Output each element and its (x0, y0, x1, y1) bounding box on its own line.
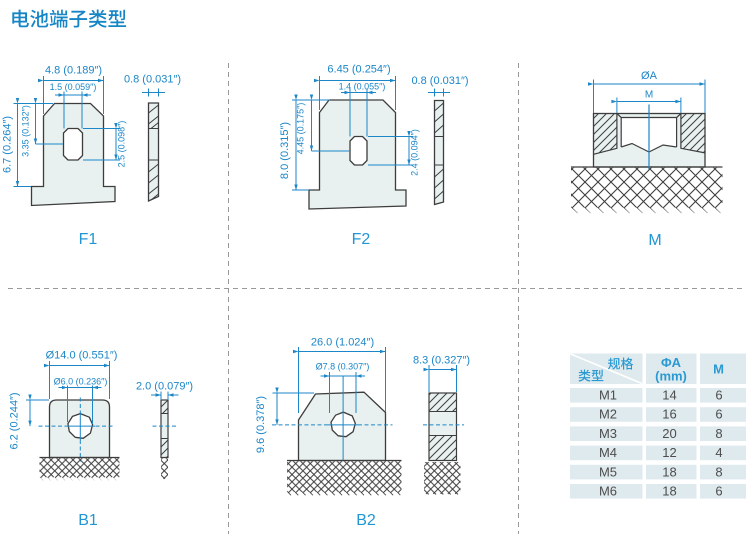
svg-text:M5: M5 (599, 464, 617, 479)
svg-text:16: 16 (662, 407, 676, 422)
svg-text:1.5 (0.059″): 1.5 (0.059″) (50, 82, 97, 92)
svg-text:3.35 (0.132″): 3.35 (0.132″) (21, 105, 31, 157)
svg-text:2.4 (0.094″): 2.4 (0.094″) (410, 129, 420, 176)
svg-text:M6: M6 (599, 484, 617, 499)
svg-text:2.0 (0.079″): 2.0 (0.079″) (136, 381, 193, 393)
svg-text:ØA: ØA (641, 70, 658, 82)
svg-text:20: 20 (662, 426, 676, 441)
svg-text:B2: B2 (356, 512, 376, 529)
svg-text:18: 18 (662, 484, 676, 499)
svg-text:M: M (648, 232, 661, 249)
svg-text:Ø6.0 (0.236″): Ø6.0 (0.236″) (54, 377, 108, 387)
svg-text:8.3 (0.327″): 8.3 (0.327″) (413, 355, 470, 367)
svg-text:8.0 (0.315″): 8.0 (0.315″) (279, 122, 291, 179)
svg-text:6.45 (0.254″): 6.45 (0.254″) (327, 64, 390, 76)
svg-text:M: M (645, 90, 653, 101)
svg-text:14: 14 (662, 388, 676, 403)
svg-text:1.4 (0.055″): 1.4 (0.055″) (339, 82, 386, 92)
svg-text:M2: M2 (599, 407, 617, 422)
svg-text:26.0 (1.024″): 26.0 (1.024″) (311, 337, 374, 349)
svg-text:6: 6 (715, 407, 722, 422)
svg-text:8: 8 (715, 426, 722, 441)
svg-text:M3: M3 (599, 426, 617, 441)
svg-text:6.7 (0.264″): 6.7 (0.264″) (2, 116, 14, 173)
svg-text:9.6 (0.378″): 9.6 (0.378″) (255, 396, 267, 453)
svg-text:18: 18 (662, 464, 676, 479)
svg-text:4.45 (0.175″): 4.45 (0.175″) (296, 103, 306, 155)
svg-text:4: 4 (715, 445, 722, 460)
svg-text:6: 6 (715, 484, 722, 499)
svg-text:2.5 (0.098″): 2.5 (0.098″) (117, 121, 127, 168)
svg-text:B1: B1 (78, 512, 98, 529)
svg-text:F1: F1 (79, 231, 98, 248)
svg-text:6.2 (0.244″): 6.2 (0.244″) (9, 392, 21, 449)
svg-text:12: 12 (662, 445, 676, 460)
svg-text:M4: M4 (599, 445, 617, 460)
svg-text:Ø7.8 (0.307″): Ø7.8 (0.307″) (316, 362, 370, 372)
svg-text:0.8 (0.031″): 0.8 (0.031″) (124, 74, 181, 86)
svg-text:F2: F2 (352, 231, 371, 248)
svg-text:6: 6 (715, 388, 722, 403)
svg-text:(mm): (mm) (655, 369, 687, 384)
svg-text:4.8 (0.189″): 4.8 (0.189″) (45, 65, 102, 77)
svg-text:0.8 (0.031″): 0.8 (0.031″) (411, 75, 468, 87)
svg-text:Ø14.0 (0.551″): Ø14.0 (0.551″) (46, 350, 118, 362)
svg-text:8: 8 (715, 464, 722, 479)
svg-text:M1: M1 (599, 388, 617, 403)
svg-text:M: M (713, 362, 724, 377)
